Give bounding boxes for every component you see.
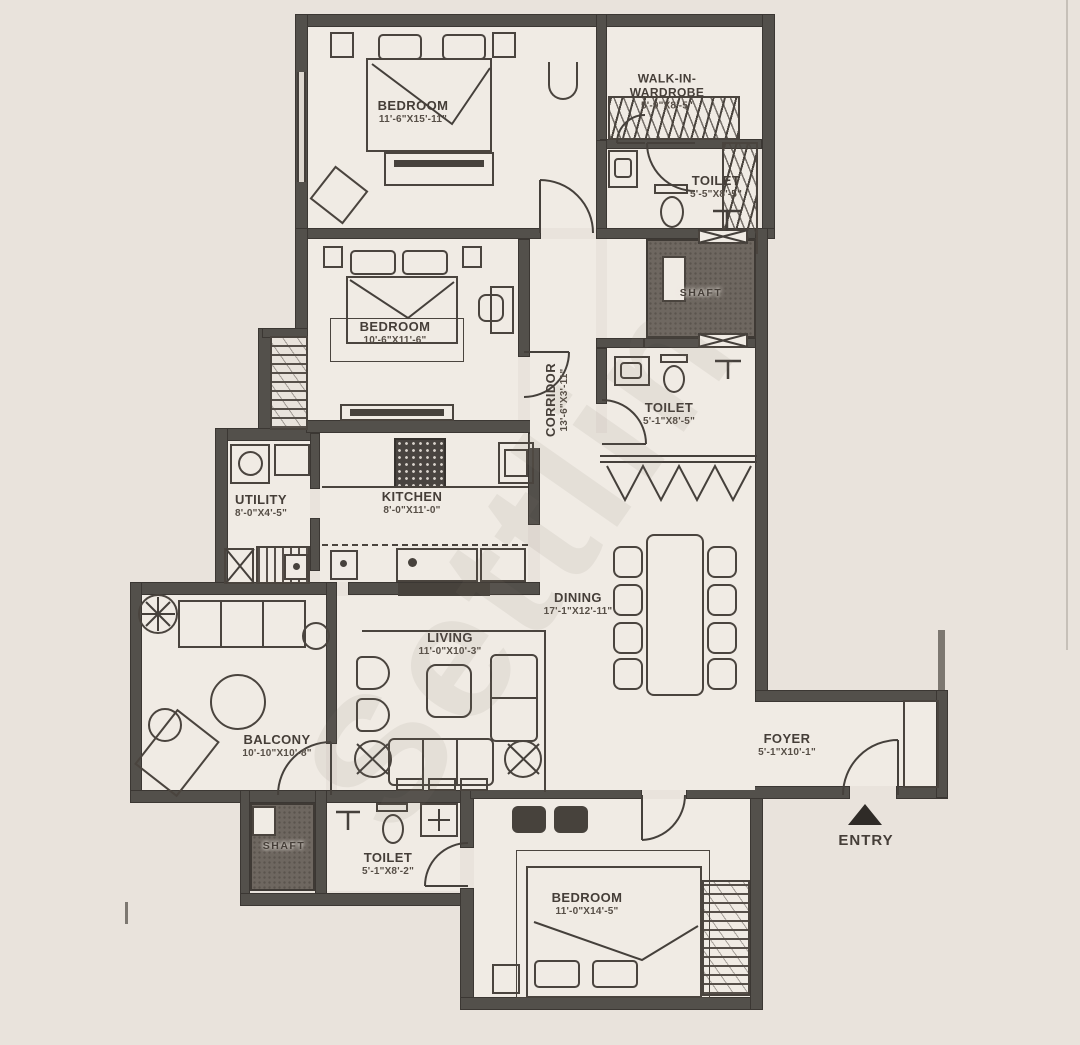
entry-arrow-icon [848, 804, 882, 825]
pillow [402, 250, 448, 275]
wall-segment [295, 228, 541, 239]
dining-chair [707, 546, 737, 578]
wc-bowl [382, 814, 404, 844]
wall-segment [596, 14, 607, 141]
pillow [442, 34, 486, 60]
room-name: TOILET [690, 173, 742, 188]
wall-segment-light [125, 902, 128, 924]
bedside-table [323, 246, 343, 268]
wc-tank [660, 354, 688, 363]
room-dims: 10'-10"X10'-8" [242, 748, 311, 760]
wall-segment [596, 348, 607, 404]
wall-segment [596, 338, 644, 348]
wall-segment [518, 239, 530, 357]
room-name: FOYER [758, 731, 816, 746]
room-name: BEDROOM [360, 319, 431, 334]
room-dims: 11'-6"X15'-11" [378, 114, 449, 126]
room-name: BEDROOM [552, 890, 623, 905]
label-shaft-2: SHAFT [263, 840, 306, 852]
fan [138, 594, 178, 634]
pillow [592, 960, 638, 988]
room-name: KITCHEN [382, 489, 443, 504]
dining-chair [707, 584, 737, 616]
wall-segment [762, 14, 775, 239]
counter-edge [322, 486, 528, 488]
wall-segment [130, 790, 476, 803]
desk-chair [478, 294, 504, 322]
round-table [210, 674, 266, 730]
room-name: SHAFT [263, 840, 306, 852]
dining-chair [613, 584, 643, 616]
room-dims: 17'-1"X12'-11" [544, 606, 613, 618]
bench-line [262, 602, 264, 646]
window [297, 72, 306, 182]
label-bedroom-2: BEDROOM 10'-6"X11'-6" [360, 319, 431, 347]
floor-plan [0, 0, 1080, 1045]
cross-box [224, 548, 254, 584]
wall-segment [240, 893, 474, 906]
tap-dot [340, 560, 347, 567]
mirror [548, 62, 578, 100]
dining-chair [613, 546, 643, 578]
room-dims: 10'-6"X11'-6" [360, 335, 431, 347]
page-border-line [1066, 0, 1068, 650]
entry-niche [903, 700, 939, 788]
fridge-inner [504, 449, 528, 477]
room-name: SHAFT [680, 287, 723, 299]
tap-dot [408, 558, 417, 567]
wall-segment [240, 790, 250, 900]
coffee-table [426, 664, 472, 718]
room-dims: 8'-0"X11'-0" [382, 505, 443, 517]
wall-segment [310, 518, 320, 571]
side-table [504, 740, 542, 778]
label-toilet-3: TOILET 5'-1"X8'-2" [362, 850, 414, 878]
bench [178, 600, 306, 648]
serve-counter [398, 583, 490, 596]
floor-plan-page: BEDROOM 11'-6"X15'-11" WALK-IN- WARDROBE… [0, 0, 1080, 1045]
basin [620, 362, 642, 379]
entry-label: ENTRY [838, 832, 893, 850]
shaft-vent [698, 333, 748, 348]
pillow [534, 960, 580, 988]
label-foyer: FOYER 5'-1"X10'-1" [758, 731, 816, 759]
side-table [354, 740, 392, 778]
bench-bar [394, 160, 484, 167]
wc-tank [654, 184, 688, 194]
armchair-dark [554, 806, 588, 833]
wardrobe-hatch [270, 336, 308, 430]
wall-segment [596, 140, 607, 238]
room-name: DINING [544, 590, 613, 605]
label-toilet-1: TOILET 5'-5"X8'-5" [690, 173, 742, 201]
cushion [396, 778, 424, 791]
label-dining: DINING 17'-1"X12'-11" [544, 590, 613, 618]
room-dims: 5'-5"X8'-5" [690, 189, 742, 201]
room-dims: 5'-1"X10'-1" [758, 747, 816, 759]
room-dims: 8'-0"X4'-5" [235, 508, 287, 520]
label-bedroom-1: BEDROOM 11'-6"X15'-11" [378, 98, 449, 126]
room-name: BEDROOM [378, 98, 449, 113]
room-name: CORRIDOR [543, 363, 558, 437]
sofa-line [492, 697, 536, 699]
pillow [350, 250, 396, 275]
wc-bowl [660, 196, 684, 228]
accent-chair [356, 698, 390, 732]
room-dims: 5'-1"X8'-2" [362, 866, 414, 878]
wall-segment [295, 228, 308, 338]
accent-chair [356, 656, 390, 690]
area-line [544, 630, 546, 792]
room-name: TOILET [643, 400, 695, 415]
pillow [378, 34, 422, 60]
label-corridor: CORRIDOR 13'-6"X3'-11" [543, 363, 571, 437]
dining-chair [707, 622, 737, 654]
shaft-pipe [252, 806, 276, 836]
tap-dot [293, 563, 300, 570]
room-dims: 5'-9"X8'-5" [630, 101, 705, 113]
label-living: LIVING 11'-0"X10'-3" [419, 630, 482, 658]
bedside-table [492, 964, 520, 994]
label-shaft-1: SHAFT [680, 287, 723, 299]
label-toilet-2: TOILET 5'-1"X8'-5" [643, 400, 695, 428]
basin [614, 158, 632, 178]
dining-table [646, 534, 704, 696]
sofa-line [456, 740, 458, 784]
wall-segment-light [938, 630, 945, 690]
counter-box [480, 548, 526, 582]
counter-dash [322, 544, 528, 546]
label-utility: UTILITY 8'-0"X4'-5" [235, 492, 287, 520]
wc-tank [376, 803, 408, 812]
room-name: WALK-IN- WARDROBE [630, 71, 705, 99]
room-dims: 11'-0"X14'-5" [552, 906, 623, 918]
shaft-vent [698, 229, 748, 244]
bedside-table [492, 32, 516, 58]
wall-segment [326, 582, 337, 744]
wall-segment [315, 790, 327, 900]
room-name: TOILET [362, 850, 414, 865]
room-name: BALCONY [242, 732, 311, 747]
label-balcony: BALCONY 10'-10"X10'-8" [242, 732, 311, 760]
wall-segment [460, 888, 474, 1010]
wall-segment [295, 14, 775, 27]
room-name: LIVING [419, 630, 482, 645]
bedside-table [462, 246, 482, 268]
bed-bench [384, 152, 494, 186]
wall-segment [460, 997, 763, 1010]
dining-chair [613, 622, 643, 654]
label-walk-in-wardrobe: WALK-IN- WARDROBE 5'-9"X8'-5" [630, 71, 705, 112]
wall-segment [750, 786, 763, 1010]
wm-drum [238, 451, 263, 476]
label-kitchen: KITCHEN 8'-0"X11'-0" [382, 489, 443, 517]
wc-bowl [663, 365, 685, 393]
wall-segment [306, 420, 540, 433]
counter [274, 444, 310, 476]
armchair-dark [512, 806, 546, 833]
geyser [420, 803, 458, 837]
label-bedroom-3: BEDROOM 11'-0"X14'-5" [552, 890, 623, 918]
cushion [460, 778, 488, 791]
wall-segment [310, 433, 320, 489]
bench-line [220, 602, 222, 646]
room-dims: 5'-1"X8'-5" [643, 416, 695, 428]
room-name: UTILITY [235, 492, 287, 507]
room-dims: 11'-0"X10'-3" [419, 646, 482, 658]
bench-bar [350, 409, 444, 416]
hob [394, 438, 446, 488]
dining-chair [613, 658, 643, 690]
side-table [302, 622, 330, 650]
cushion [428, 778, 456, 791]
bedside-table [330, 32, 354, 58]
dining-chair [707, 658, 737, 690]
wall-segment [755, 228, 768, 702]
room-dims: 13'-6"X3'-11" [559, 363, 571, 437]
label-entry: ENTRY [838, 832, 893, 850]
